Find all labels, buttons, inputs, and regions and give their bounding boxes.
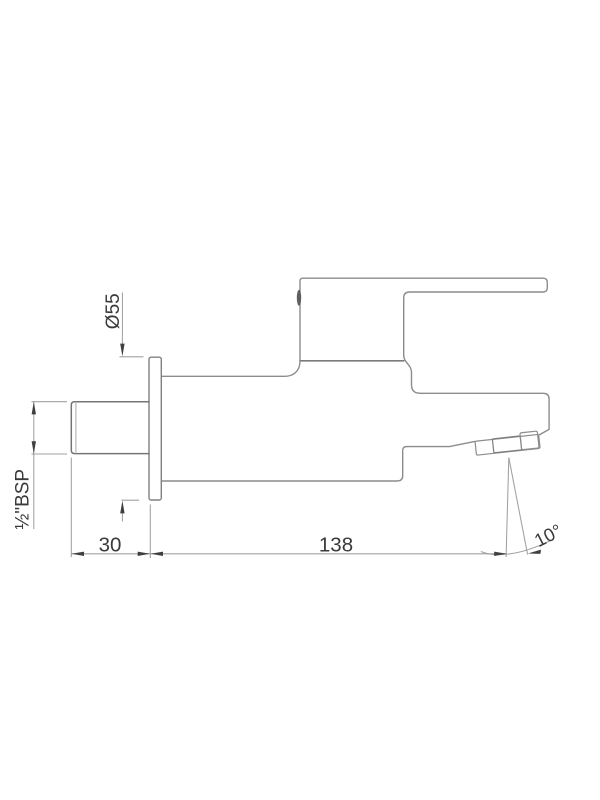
svg-text:Ø55: Ø55 bbox=[103, 293, 124, 329]
svg-text:138: 138 bbox=[319, 534, 353, 557]
svg-text:30: 30 bbox=[99, 534, 122, 557]
svg-text:½"BSP: ½"BSP bbox=[13, 469, 34, 530]
